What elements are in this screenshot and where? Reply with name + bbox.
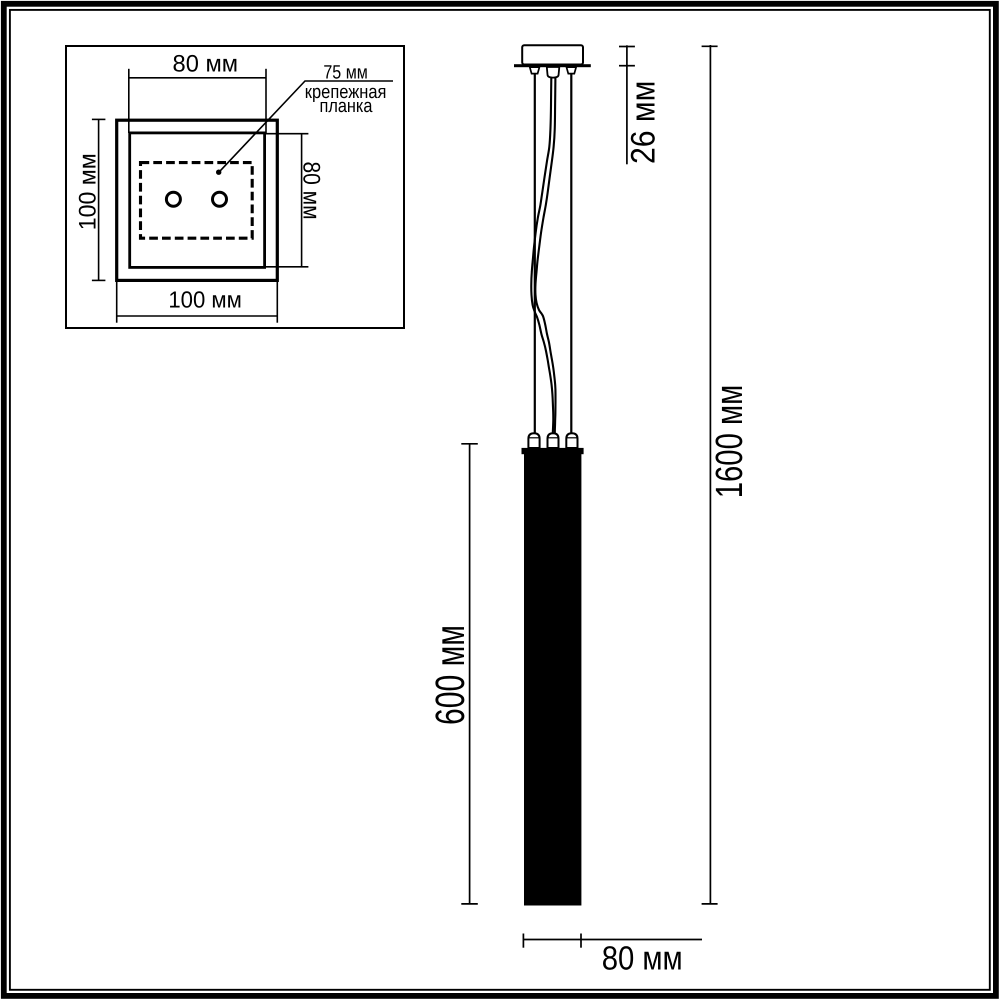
svg-text:100 мм: 100 мм bbox=[75, 153, 102, 230]
svg-text:планка: планка bbox=[320, 96, 373, 117]
svg-text:75 мм: 75 мм bbox=[323, 62, 368, 83]
svg-text:600 мм: 600 мм bbox=[427, 625, 473, 725]
svg-text:100 мм: 100 мм bbox=[168, 286, 242, 312]
svg-text:80 мм: 80 мм bbox=[602, 941, 683, 978]
svg-text:26 мм: 26 мм bbox=[625, 81, 663, 165]
svg-text:1600 мм: 1600 мм bbox=[709, 385, 751, 499]
svg-text:80 мм: 80 мм bbox=[173, 51, 239, 78]
svg-text:80 мм: 80 мм bbox=[298, 162, 325, 220]
